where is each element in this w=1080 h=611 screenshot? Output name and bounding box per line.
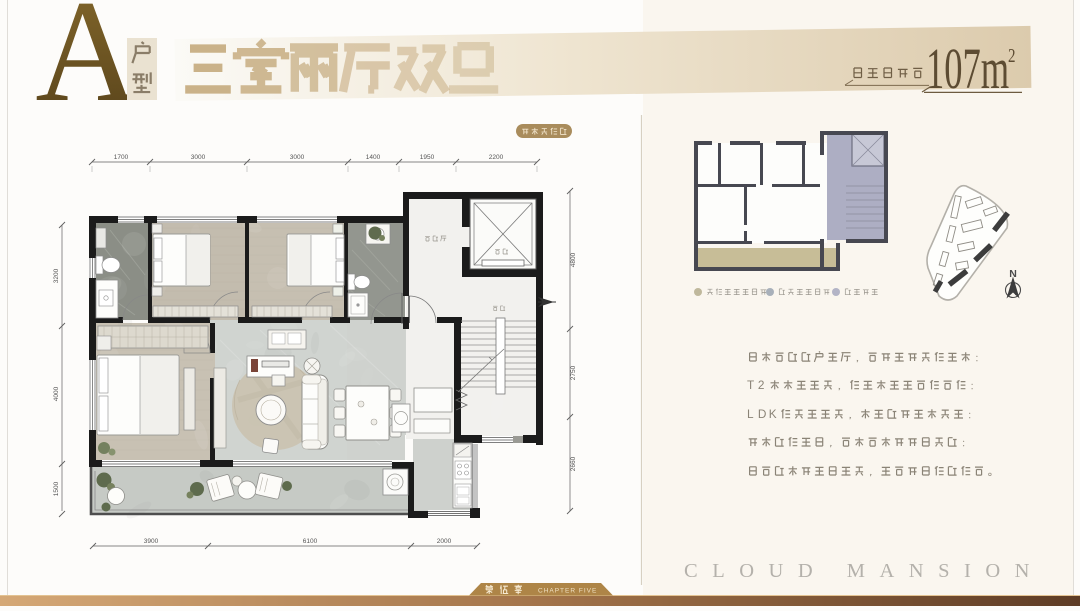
svg-text:L: L xyxy=(747,407,754,421)
svg-text:1950: 1950 xyxy=(420,154,435,161)
svg-text:3200: 3200 xyxy=(53,268,60,283)
svg-text:107m: 107m xyxy=(926,38,1009,101)
svg-text:3000: 3000 xyxy=(191,154,206,161)
svg-text:CHAPTER FIVE: CHAPTER FIVE xyxy=(538,588,597,595)
svg-text:D: D xyxy=(758,407,767,421)
svg-text:3000: 3000 xyxy=(290,154,305,161)
svg-text:4000: 4000 xyxy=(53,386,60,401)
svg-text:2750: 2750 xyxy=(570,365,577,380)
svg-text:T: T xyxy=(747,378,754,392)
svg-text:2: 2 xyxy=(1008,44,1015,67)
svg-text:2000: 2000 xyxy=(437,538,452,545)
svg-text:1400: 1400 xyxy=(366,154,381,161)
svg-text:A: A xyxy=(35,0,138,132)
svg-text:1500: 1500 xyxy=(53,481,60,496)
svg-text:4800: 4800 xyxy=(570,252,577,267)
svg-text:3900: 3900 xyxy=(144,538,159,545)
svg-text:2660: 2660 xyxy=(570,456,577,471)
svg-text:K: K xyxy=(769,407,777,421)
svg-text:CLOUD MANSION: CLOUD MANSION xyxy=(684,560,1044,582)
svg-text:2200: 2200 xyxy=(489,154,504,161)
svg-text:2: 2 xyxy=(758,378,765,392)
svg-text:6100: 6100 xyxy=(303,538,318,545)
svg-text:1700: 1700 xyxy=(114,154,129,161)
